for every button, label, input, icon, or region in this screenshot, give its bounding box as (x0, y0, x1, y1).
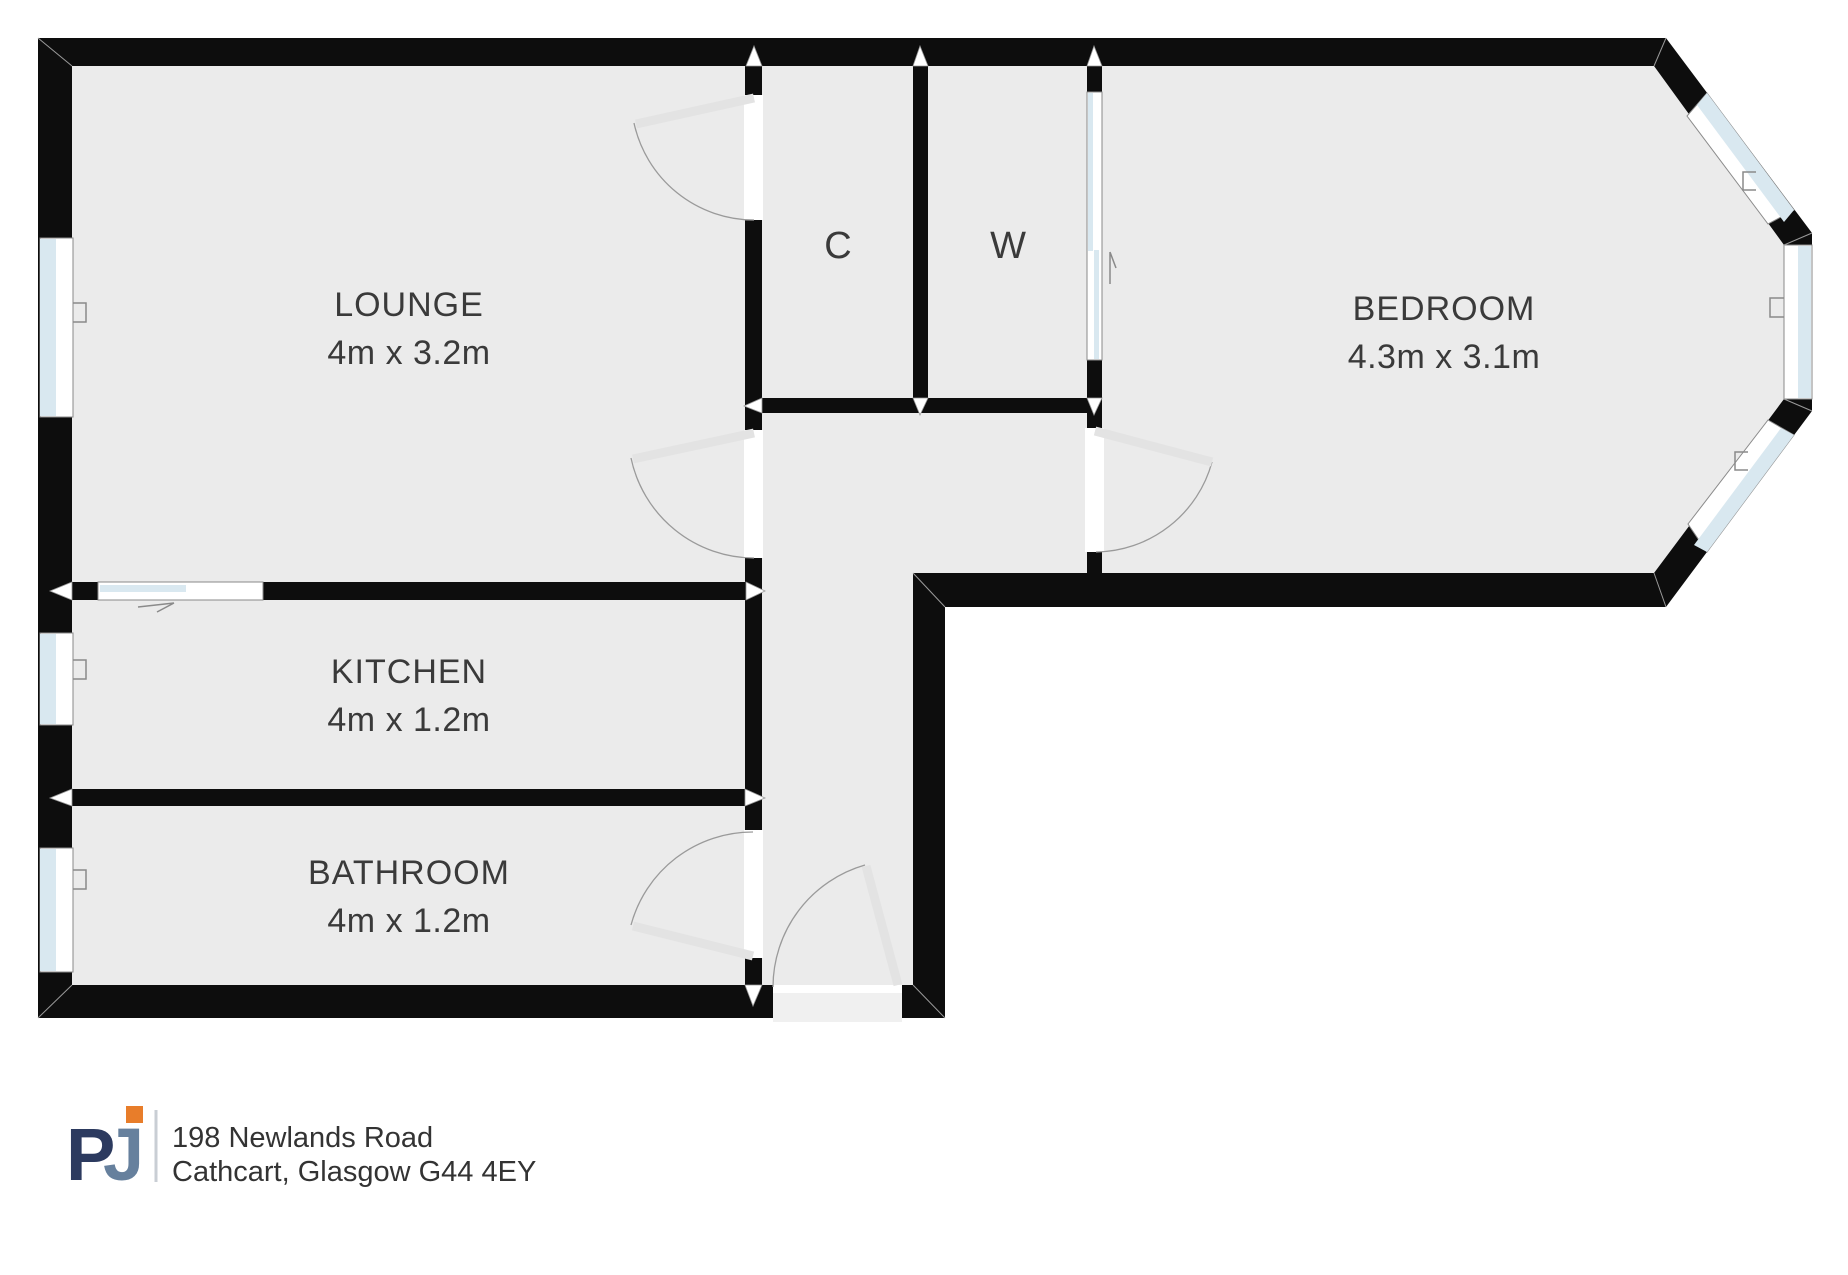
agency-logo: P J (66, 1106, 156, 1196)
room-label-cupboard: C (824, 225, 851, 267)
room-label-bedroom: BEDROOM (1353, 290, 1536, 328)
window-lounge-glass (40, 239, 56, 416)
room-dims-kitchen: 4m x 1.2m (327, 701, 490, 739)
address-line-1: 198 Newlands Road (172, 1122, 433, 1154)
floorplan-svg: LOUNGE 4m x 3.2m KITCHEN 4m x 1.2m BATHR… (0, 0, 1848, 1275)
room-label-wardrobe: W (990, 225, 1026, 267)
room-label-bathroom: BATHROOM (308, 854, 510, 892)
wall-hall-right (913, 573, 945, 1018)
wall-cw-divider (913, 66, 928, 413)
address-line-2: Cathcart, Glasgow G44 4EY (172, 1156, 536, 1188)
wall-bottom-left (38, 985, 773, 1018)
wall-top (38, 38, 1666, 66)
sliding-door-glass-upper (1088, 93, 1093, 251)
logo-letter-j: J (103, 1113, 144, 1196)
room-label-lounge: LOUNGE (334, 286, 484, 324)
logo-orange-dot (126, 1106, 143, 1123)
window-hatch-glass (100, 585, 186, 592)
room-dims-lounge: 4m x 3.2m (327, 334, 490, 372)
room-dims-bedroom: 4.3m x 3.1m (1348, 338, 1541, 376)
wall-bedroom-bottom (913, 573, 1666, 607)
room-dims-bathroom: 4m x 1.2m (327, 902, 490, 940)
room-label-kitchen: KITCHEN (331, 653, 487, 691)
door-gap-bedroom (1085, 428, 1104, 552)
door-gap-cupboard (744, 95, 763, 220)
wall-kitchen-bottom (72, 789, 746, 806)
floorplan-page: LOUNGE 4m x 3.2m KITCHEN 4m x 1.2m BATHR… (0, 0, 1848, 1275)
bay-window-middle-glass (1798, 246, 1811, 398)
entrance-threshold (773, 993, 902, 1022)
door-gap-bathroom (744, 830, 763, 958)
sliding-door-glass-lower (1094, 250, 1099, 359)
window-bathroom-glass (40, 849, 56, 971)
window-kitchen-glass (40, 634, 56, 724)
door-gap-lounge (744, 430, 763, 558)
